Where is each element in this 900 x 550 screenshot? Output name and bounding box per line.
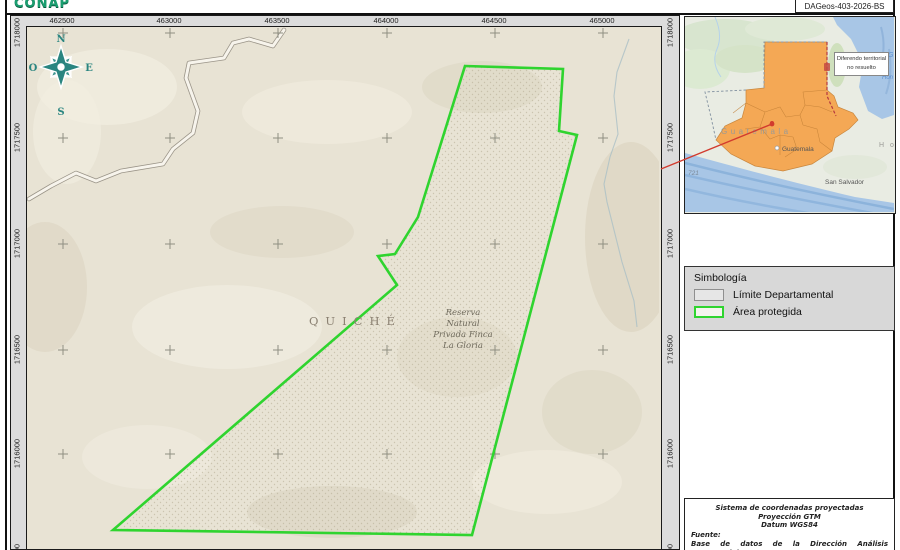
grid-coordinate-label: 464000 — [364, 16, 408, 25]
grid-coordinate-label: 1716000 — [13, 432, 22, 476]
source-text: Base de datos de la Dirección Análisis G… — [691, 540, 888, 550]
legend-label-departmental: Límite Departamental — [733, 289, 833, 301]
grid-coordinate-label: 1716000 — [666, 432, 675, 476]
legend-item-departmental: Límite Departamental — [694, 289, 885, 301]
main-map: N S O E QUICHÉ ReservaNaturalPrivada Fin… — [26, 26, 662, 550]
map-document-page: CONAP DAGeos-403-2026-BS — [0, 0, 900, 550]
crs-line-3: Datum WGS84 — [691, 521, 888, 530]
compass-west-label: O — [29, 63, 38, 74]
compass-east-label: E — [85, 63, 93, 74]
grid-coordinate-label: 1715500 — [666, 537, 675, 550]
grid-coordinate-label: 463000 — [147, 16, 191, 25]
compass-south-label: S — [57, 107, 64, 118]
legend-label-protected-area: Área protegida — [733, 306, 802, 318]
territorial-note: Diferendo territorial no resuelto — [834, 52, 889, 76]
department-label: QUICHÉ — [309, 314, 402, 328]
document-id-box: DAGeos-403-2026-BS — [795, 0, 894, 13]
inset-canvas: Guatemala Guatemala San Salvador H o G H… — [685, 17, 894, 212]
legend: Simbología Límite Departamental Área pro… — [684, 266, 895, 331]
grid-coordinate-label: 1716500 — [13, 328, 22, 372]
grid-coordinate-label: 462500 — [40, 16, 84, 25]
grid-coordinate-label: 1717000 — [13, 222, 22, 266]
grid-coordinate-label: 1718000 — [13, 11, 22, 55]
inset-neighbor-capital-label: San Salvador — [825, 179, 865, 186]
grid-coordinate-label: 465000 — [580, 16, 624, 25]
inset-locator-map: Guatemala Guatemala San Salvador H o G H… — [684, 16, 896, 214]
crs-line-2: Proyección GTM — [691, 513, 888, 522]
grid-coordinate-label: 1717500 — [666, 116, 675, 160]
page-border-left — [5, 0, 7, 550]
inset-depth-label: 721 — [688, 170, 699, 177]
inset-location-dot — [770, 121, 774, 125]
map-canvas: N S O E — [27, 27, 659, 549]
grid-coordinate-label: 463500 — [255, 16, 299, 25]
inset-country-label: Guatemala — [721, 127, 792, 136]
inset-capital-dot — [775, 146, 779, 150]
inset-capital-label: Guatemala — [782, 146, 814, 153]
compass-north-label: N — [56, 34, 65, 45]
legend-item-protected-area: Área protegida — [694, 306, 885, 318]
protected-area-swatch — [694, 306, 724, 318]
crs-line-1: Sistema de coordenadas proyectadas — [691, 504, 888, 513]
grid-coordinate-label: 1715500 — [13, 537, 22, 550]
grid-coordinate-label: 464500 — [472, 16, 516, 25]
source-label: Fuente: — [691, 531, 888, 540]
coordinate-system-box: Sistema de coordenadas proyectadas Proye… — [684, 498, 895, 550]
grid-coordinate-label: 1718000 — [666, 11, 675, 55]
document-id: DAGeos-403-2026-BS — [804, 2, 884, 11]
protected-area-label: ReservaNaturalPrivada FincaLa Gloria — [403, 308, 523, 352]
grid-coordinate-label: 1717000 — [666, 222, 675, 266]
grid-coordinate-label: 1716500 — [666, 328, 675, 372]
legend-title: Simbología — [694, 272, 885, 284]
conap-logo: CONAP — [14, 0, 70, 11]
grid-coordinate-label: 1717500 — [13, 116, 22, 160]
departmental-boundary-swatch — [694, 289, 724, 301]
inset-honduras-label: H o — [879, 142, 894, 149]
